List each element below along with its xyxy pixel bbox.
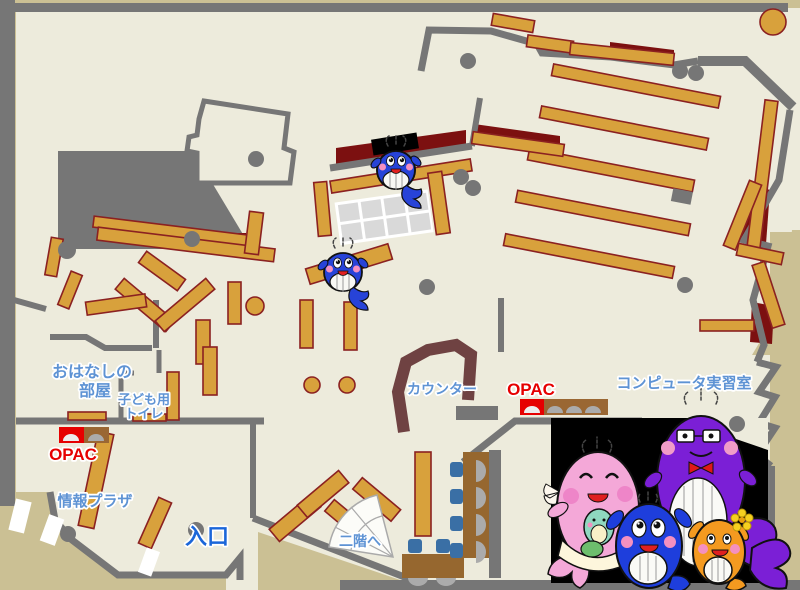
pillars-shape — [460, 53, 476, 69]
kids-toilet-label-line1: 子ども用 — [118, 392, 170, 407]
flower-icon-shape — [738, 509, 746, 517]
mama-whale-mascot-shape — [591, 525, 607, 543]
pillars-shape — [419, 279, 435, 295]
flower-icon-shape — [731, 514, 739, 522]
mama-whale-mascot-shape — [603, 519, 606, 522]
mama-whale-mascot-shape — [588, 523, 593, 528]
computer-desks-shape — [450, 489, 463, 504]
storytelling-room-label-line1: おはなしの — [52, 363, 132, 381]
blue-kid-whale-mascot-shape — [664, 536, 676, 548]
storytelling-room-label-line2: 部屋 — [79, 381, 111, 400]
info-plaza-label: 情報プラザ — [57, 492, 132, 510]
mascot-family-photo-shape — [729, 416, 745, 432]
computer-desks-shape — [450, 543, 463, 558]
opac-terminal-right — [520, 399, 608, 415]
opac-left-label: OPAC — [49, 445, 97, 464]
to-second-floor-label: 二階へ — [339, 533, 381, 549]
pillars-shape — [60, 526, 76, 542]
study-table-grid-shape — [338, 202, 360, 222]
pillars-shape — [58, 241, 76, 259]
opac-right-label: OPAC — [507, 380, 555, 399]
mama-whale-mascot-shape — [581, 541, 603, 557]
bookshelves-shape — [415, 452, 431, 536]
study-table-grid-shape — [386, 216, 408, 236]
computer-desks-shape — [450, 516, 463, 531]
orange-kid-whale-mascot-shape — [730, 544, 740, 554]
papa-whale-mascot-shape — [661, 441, 675, 455]
mascot-family-photo — [544, 388, 791, 590]
blue-kid-whale-mascot-shape — [654, 522, 656, 524]
flower-icon-shape — [745, 514, 753, 522]
top-wall-band — [15, 3, 788, 12]
counter-label: カウンター — [407, 381, 477, 397]
study-table-grid-shape — [409, 213, 431, 233]
computer-desks-shape — [436, 539, 450, 553]
computer-room-label: コンピュータ実習室 — [616, 374, 751, 392]
pillars-shape — [453, 169, 469, 185]
bookshelves-shape — [203, 347, 217, 395]
computer-desks-shape — [408, 539, 422, 553]
orange-kid-whale-mascot-shape — [709, 536, 713, 540]
walls-shape — [456, 406, 498, 420]
bookshelves-shape — [228, 282, 241, 324]
flower-icon-shape — [733, 523, 741, 531]
bookshelves-shape — [300, 300, 313, 348]
mama-whale-mascot-shape — [593, 519, 596, 522]
entrance-label: 入口 — [185, 524, 229, 549]
floor-map-canvas: おはなしの 部屋 子ども用 トイレ OPAC 情報プラザ 入口 カウンター OP… — [0, 0, 800, 590]
round-tables-shape — [304, 377, 320, 393]
bookshelves-shape — [700, 320, 754, 331]
study-table-grid-shape — [363, 219, 385, 239]
pillars-shape — [677, 277, 693, 293]
blue-kid-whale-mascot-shape — [654, 522, 661, 529]
blue-kid-whale-mascot-shape — [637, 522, 639, 524]
pillars-shape — [672, 63, 688, 79]
pillars-shape — [465, 180, 481, 196]
orange-kid-whale-mascot-shape — [698, 544, 708, 554]
mama-whale-mascot-shape — [563, 488, 579, 504]
round-tables-shape — [246, 297, 264, 315]
stepped-room — [187, 101, 294, 183]
bookshelves-shape — [68, 412, 106, 420]
study-table-grid-shape — [361, 199, 383, 219]
papa-whale-mascot-shape — [683, 434, 688, 439]
blue-kid-whale-mascot-shape — [621, 536, 633, 548]
papa-whale-mascot-shape — [724, 441, 738, 455]
opac-terminal-left — [59, 427, 109, 443]
pillars-shape — [184, 231, 200, 247]
bookshelves-shape — [344, 302, 357, 350]
kids-toilet-label-line2: トイレ — [124, 406, 163, 421]
orange-kid-whale-mascot-shape — [725, 536, 729, 540]
papa-whale-mascot-shape — [709, 434, 714, 439]
flower-icon-shape — [743, 522, 751, 530]
blue-kid-whale-mascot-shape — [637, 522, 644, 529]
left-wall-band — [0, 0, 15, 506]
pillars-shape — [688, 65, 704, 81]
pillars-shape — [248, 151, 264, 167]
walls-shape — [489, 450, 501, 578]
library-floor-map: おはなしの 部屋 子ども用 トイレ OPAC 情報プラザ 入口 カウンター OP… — [0, 0, 800, 590]
round-tables-shape — [339, 377, 355, 393]
round-tables-shape — [760, 9, 786, 35]
computer-desks-shape — [450, 462, 463, 477]
mama-whale-mascot-shape — [617, 486, 633, 502]
flower-icon-shape — [739, 517, 745, 523]
